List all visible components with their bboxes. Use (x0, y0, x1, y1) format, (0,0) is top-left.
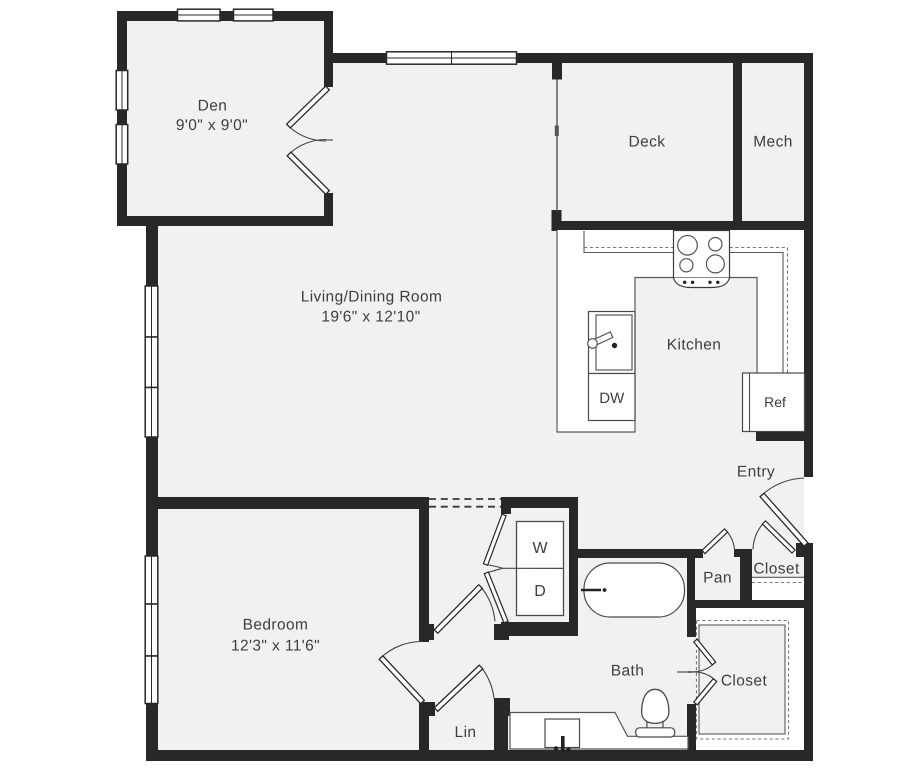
svg-text:W: W (532, 540, 548, 557)
svg-text:Entry: Entry (737, 464, 775, 481)
svg-text:Deck: Deck (629, 134, 666, 151)
svg-text:Closet: Closet (721, 673, 768, 690)
svg-text:Bedroom: Bedroom (243, 617, 309, 634)
svg-text:Mech: Mech (753, 134, 793, 151)
svg-text:Bath: Bath (611, 663, 645, 680)
svg-text:D: D (534, 583, 546, 600)
svg-text:DW: DW (599, 390, 625, 407)
svg-text:Lin: Lin (455, 724, 477, 741)
svg-text:19'6" x 12'10": 19'6" x 12'10" (321, 309, 420, 326)
svg-text:Den: Den (198, 98, 228, 115)
svg-text:Living/Dining Room: Living/Dining Room (301, 289, 443, 306)
svg-text:Pan: Pan (703, 570, 732, 587)
svg-text:Ref: Ref (764, 394, 786, 410)
svg-text:Closet: Closet (753, 561, 800, 578)
svg-text:9'0" x 9'0": 9'0" x 9'0" (176, 117, 248, 134)
svg-text:12'3" x 11'6": 12'3" x 11'6" (231, 638, 320, 655)
svg-text:Kitchen: Kitchen (667, 337, 722, 354)
